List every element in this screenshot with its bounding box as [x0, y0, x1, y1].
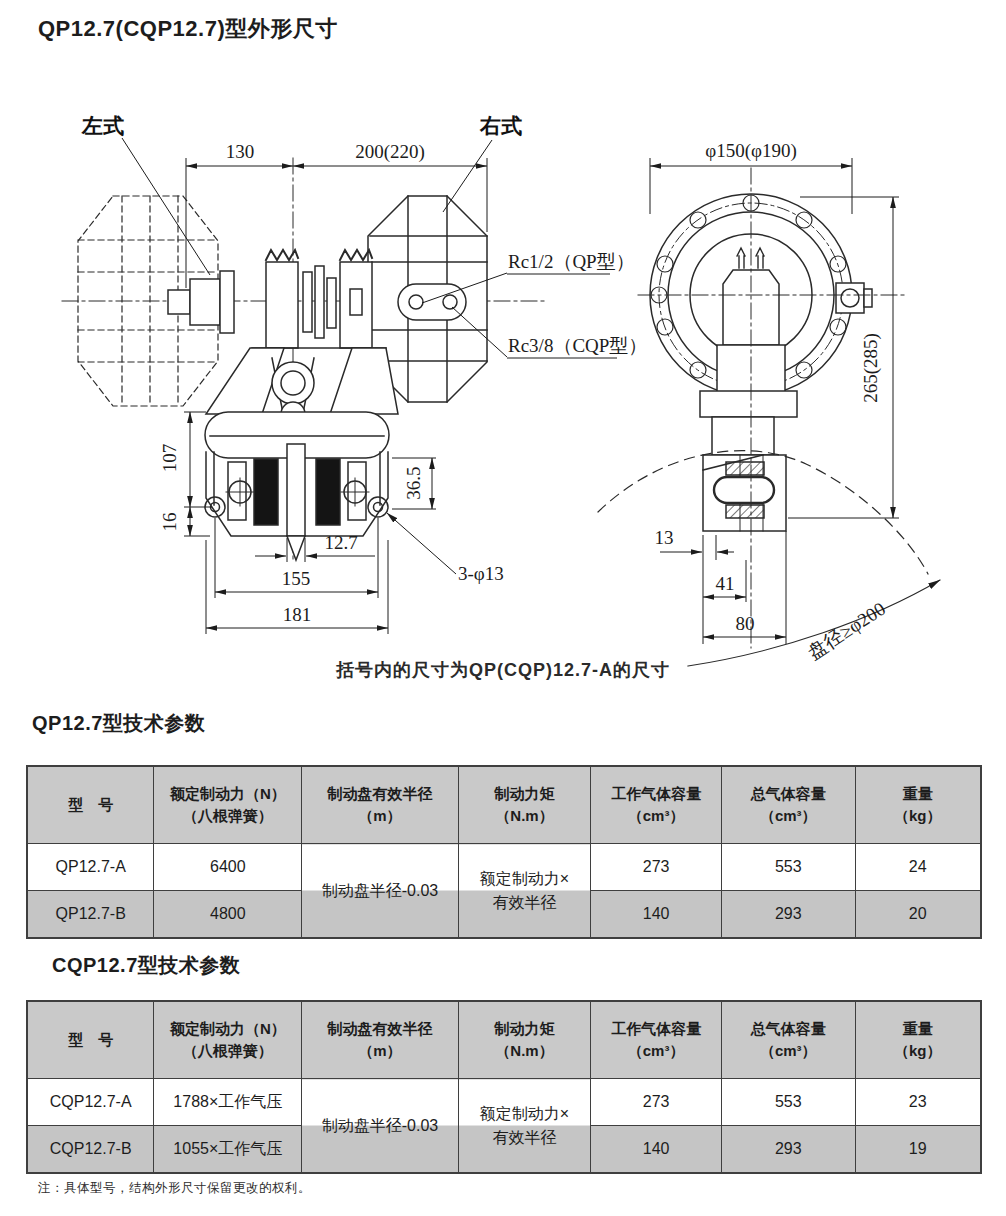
cqp-col-weight-line2: （kg） [894, 1042, 942, 1059]
qp-col-workvol-line1: 工作气体容量 [611, 785, 701, 802]
cqp-a-force: 1788×工作气压 [154, 1079, 302, 1126]
dim-phi150-label: φ150(φ190) [705, 140, 797, 162]
cqp-col-totalvol-line1: 总气体容量 [751, 1020, 826, 1037]
rc-qp-label: Rc1/2（QP型） [508, 251, 635, 272]
datasheet-page: QP12.7(CQP12.7)型外形尺寸 [0, 0, 1006, 1216]
qp-torque-line1: 额定制动力× [480, 870, 569, 887]
left-type-label: 左式 [81, 114, 124, 137]
cqp-row-a: CQP12.7-A 1788×工作气压 制动盘半径-0.03 额定制动力×有效半… [27, 1079, 981, 1126]
qp-b-workvol: 140 [591, 891, 722, 939]
qp-b-model: QP12.7-B [27, 891, 154, 939]
qp-col-model-label: 型 号 [68, 796, 113, 813]
dim-12-7-label: 12.7 [324, 532, 357, 553]
brake-pad-right [316, 459, 340, 525]
cqp-col-torque-line2: （N.m） [495, 1042, 553, 1059]
right-type-label: 右式 [479, 114, 522, 137]
cqp-col-model: 型 号 [27, 1001, 154, 1079]
brake-pad-left [254, 459, 278, 525]
qp-col-model: 型 号 [27, 766, 154, 844]
qp-col-weight-line1: 重量 [903, 785, 933, 802]
qp-col-weight: 重量（kg） [855, 766, 981, 844]
rc-cqp-label: Rc3/8（CQP型） [508, 335, 647, 356]
cqp-b-force: 1055×工作气压 [154, 1126, 302, 1174]
footnote: 注：具体型号，结构外形尺寸保留更改的权利。 [38, 1180, 311, 1197]
cqp-col-totalvol-line2: （cm³） [760, 1042, 817, 1059]
dim-13-label: 13 [655, 527, 674, 548]
cqp-torque-merged-cell: 额定制动力×有效半径 [458, 1079, 591, 1174]
side-tab [836, 283, 872, 313]
qp-col-radius-line1: 制动盘有效半径 [327, 785, 432, 802]
cqp-torque-line1: 额定制动力× [480, 1105, 569, 1122]
cqp-radius-merged-cell: 制动盘半径-0.03 [302, 1079, 458, 1174]
cqp-col-weight-line1: 重量 [903, 1020, 933, 1037]
qp-col-weight-line2: （kg） [894, 807, 942, 824]
cqp-col-workvol: 工作气体容量（cm³） [591, 1001, 722, 1079]
qp-header-row: 型 号 额定制动力（N）（八根弹簧） 制动盘有效半径（m） 制动力矩（N.m） … [27, 766, 981, 844]
qp-col-totalvol: 总气体容量（cm³） [721, 766, 855, 844]
qp-col-workvol-line2: （cm³） [628, 807, 685, 824]
qp-col-torque-line1: 制动力矩 [494, 785, 554, 802]
cqp-col-force-line1: 额定制动力（N） [170, 1020, 286, 1037]
qp-b-force: 4800 [154, 891, 302, 939]
qp-col-force-line1: 额定制动力（N） [170, 785, 286, 802]
dim-200-220-label: 200(220) [355, 141, 425, 163]
dim-3-phi13-label: 3-φ13 [458, 563, 504, 584]
cqp-spec-table: 型 号 额定制动力（N）（八根弹簧） 制动盘有效半径（m） 制动力矩（N.m） … [26, 1000, 982, 1174]
cqp-col-force-line2: （八根弹簧） [183, 1042, 273, 1059]
qp-section-heading: QP12.7型技术参数 [32, 710, 205, 737]
qp-torque-line2: 有效半径 [492, 894, 556, 911]
qp-col-totalvol-line1: 总气体容量 [751, 785, 826, 802]
qp-spec-table: 型 号 额定制动力（N）（八根弹簧） 制动盘有效半径（m） 制动力矩（N.m） … [26, 765, 982, 939]
cqp-section-heading: CQP12.7型技术参数 [52, 952, 240, 979]
cqp-col-workvol-line2: （cm³） [628, 1042, 685, 1059]
qp-col-torque: 制动力矩（N.m） [458, 766, 591, 844]
qp-a-workvol: 273 [591, 844, 722, 891]
drawing-caption: 括号内的尺寸为QP(CQP)12.7-A的尺寸 [0, 658, 1006, 682]
disc-diameter-label: 盘径≥φ200 [804, 598, 889, 663]
qp-a-totalvol: 553 [721, 844, 855, 891]
dim-80-label: 80 [736, 613, 755, 634]
cqp-col-radius: 制动盘有效半径（m） [302, 1001, 458, 1079]
qp-torque-merged-cell: 额定制动力×有效半径 [458, 844, 591, 939]
adjuster-bolt [714, 477, 774, 503]
lower-bracket [703, 455, 786, 531]
qp-col-totalvol-line2: （cm³） [760, 807, 817, 824]
dim-265-285-label: 265(285) [860, 333, 882, 403]
cqp-b-weight: 19 [855, 1126, 981, 1174]
cqp-col-torque: 制动力矩（N.m） [458, 1001, 591, 1079]
dim-41-label: 41 [716, 573, 735, 594]
cqp-a-weight: 23 [855, 1079, 981, 1126]
dim-181-label: 181 [283, 604, 312, 625]
qp-radius-merged-cell: 制动盘半径-0.03 [302, 844, 458, 939]
spring-posts [252, 262, 386, 348]
cqp-a-totalvol: 553 [721, 1079, 855, 1126]
springs [266, 250, 372, 260]
cqp-a-model: CQP12.7-A [27, 1079, 154, 1126]
page-title: QP12.7(CQP12.7)型外形尺寸 [38, 14, 338, 44]
qp-col-radius-line2: （m） [358, 807, 401, 824]
cqp-b-workvol: 140 [591, 1126, 722, 1174]
cqp-col-totalvol: 总气体容量（cm³） [721, 1001, 855, 1079]
qp-col-radius: 制动盘有效半径（m） [302, 766, 458, 844]
front-view [62, 158, 548, 560]
qp-b-totalvol: 293 [721, 891, 855, 939]
cqp-torque-line2: 有效半径 [492, 1129, 556, 1146]
center-tower [700, 248, 797, 455]
qp-b-weight: 20 [855, 891, 981, 939]
qp-col-workvol: 工作气体容量（cm³） [591, 766, 722, 844]
cqp-col-force: 额定制动力（N）（八根弹簧） [154, 1001, 302, 1079]
dim-36-5-label: 36.5 [403, 466, 424, 499]
dim-155-label: 155 [282, 568, 311, 589]
cqp-col-radius-line2: （m） [358, 1042, 401, 1059]
qp-row-a: QP12.7-A 6400 制动盘半径-0.03 额定制动力×有效半径 273 … [27, 844, 981, 891]
qp-a-weight: 24 [855, 844, 981, 891]
dim-107-label: 107 [159, 444, 180, 473]
outline-drawing: 左式 右式 130 200(220) 107 16 36.5 12.7 155 … [0, 50, 1006, 675]
cqp-col-workvol-line1: 工作气体容量 [611, 1020, 701, 1037]
side-view [598, 168, 940, 666]
cqp-b-totalvol: 293 [721, 1126, 855, 1174]
disc-slot [287, 444, 305, 536]
dim-16-label: 16 [159, 513, 180, 532]
caliper-housing [205, 412, 389, 560]
cqp-col-radius-line1: 制动盘有效半径 [327, 1020, 432, 1037]
qp-col-force: 额定制动力（N）（八根弹簧） [154, 766, 302, 844]
qp-a-force: 6400 [154, 844, 302, 891]
cqp-a-workvol: 273 [591, 1079, 722, 1126]
cqp-header-row: 型 号 额定制动力（N）（八根弹簧） 制动盘有效半径（m） 制动力矩（N.m） … [27, 1001, 981, 1079]
cqp-col-weight: 重量（kg） [855, 1001, 981, 1079]
cqp-col-torque-line1: 制动力矩 [494, 1020, 554, 1037]
qp-a-model: QP12.7-A [27, 844, 154, 891]
qp-col-torque-line2: （N.m） [495, 807, 553, 824]
qp-col-force-line2: （八根弹簧） [183, 807, 273, 824]
cqp-col-model-label: 型 号 [68, 1031, 113, 1048]
cqp-b-model: CQP12.7-B [27, 1126, 154, 1174]
dim-130-label: 130 [226, 141, 255, 162]
